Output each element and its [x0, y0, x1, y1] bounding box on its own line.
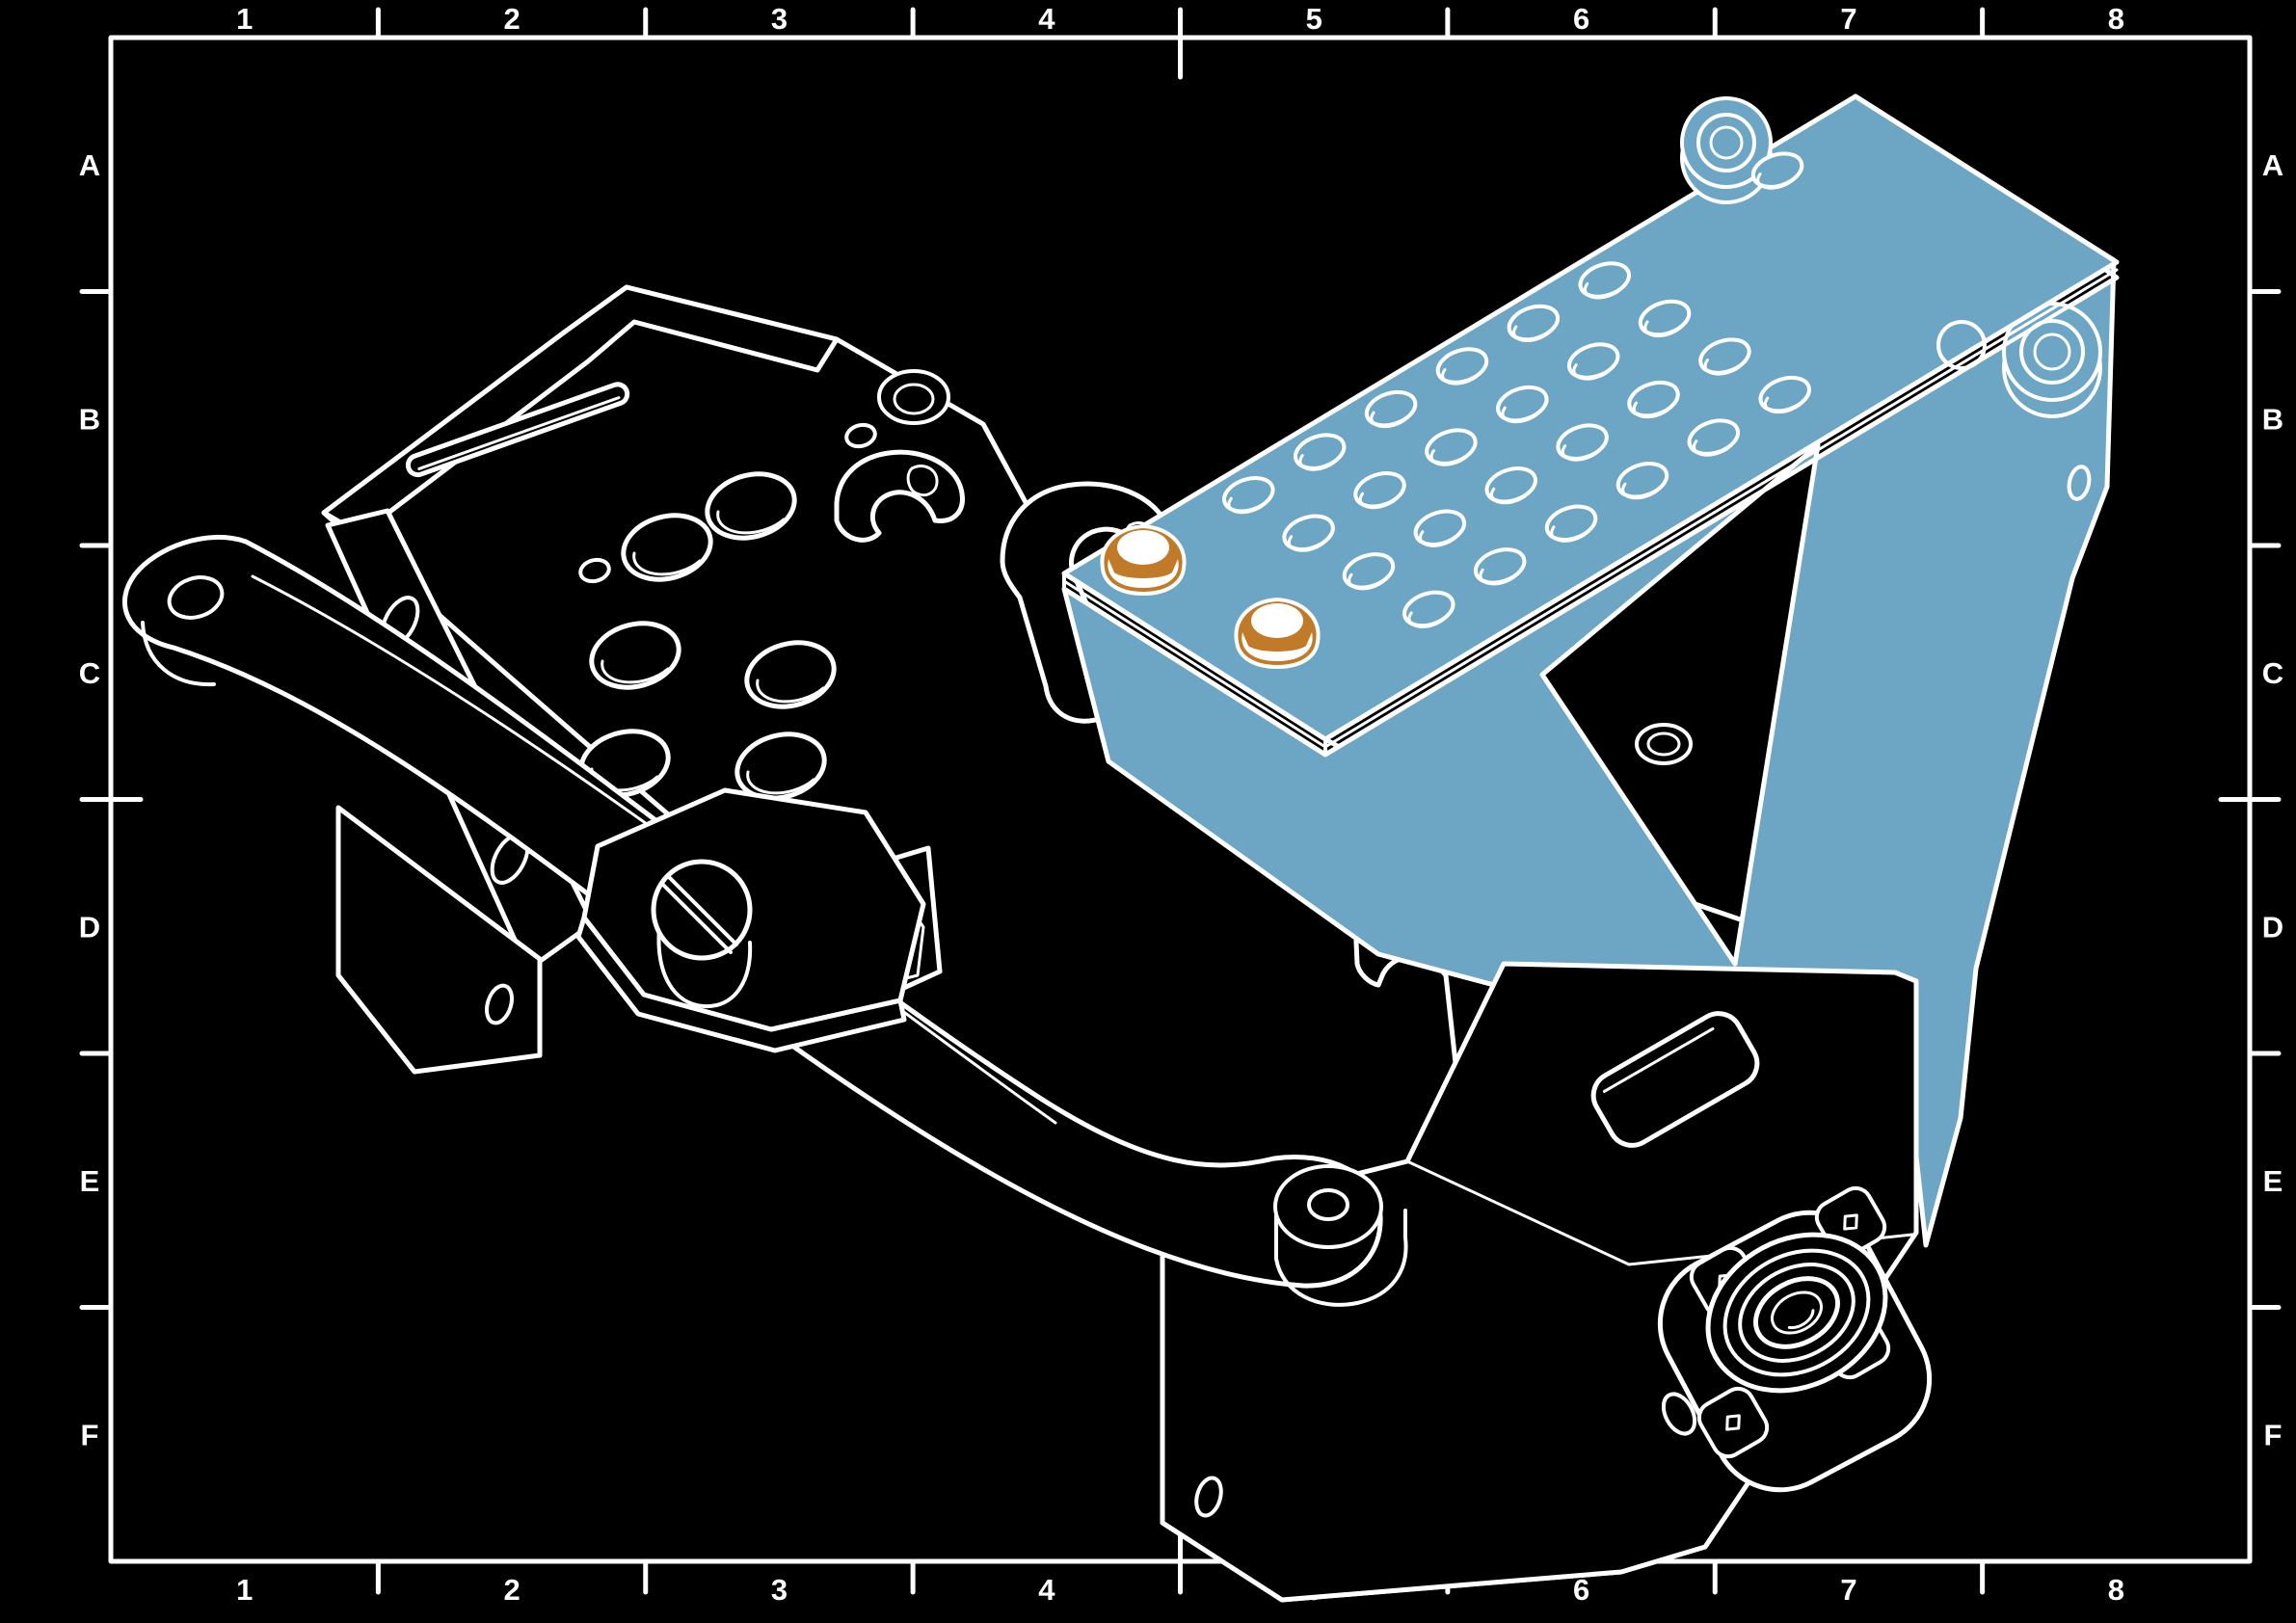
zone-label-col: 7	[1840, 1573, 1856, 1607]
zone-label-col: 6	[1573, 2, 1589, 36]
zone-label-col: 1	[236, 2, 253, 36]
isometric-view	[124, 96, 2117, 1600]
zone-label-col: 5	[1306, 2, 1322, 36]
zone-label-row: B	[79, 402, 100, 436]
screw-cap	[1117, 530, 1169, 565]
zone-label-row: A	[79, 148, 100, 182]
zone-label-col: 8	[2108, 2, 2124, 36]
technical-drawing: 1122334455667788AABBCCDDEEFF	[0, 0, 2296, 1623]
thumbscrew-icon	[1236, 599, 1318, 667]
zone-label-col: 2	[503, 2, 520, 36]
zone-label-row: C	[2262, 656, 2283, 690]
zone-label-row: B	[2262, 402, 2283, 436]
bracket-bushing-top	[1682, 98, 1771, 202]
deck-washer-inner	[894, 385, 933, 413]
zone-label-col: 4	[1038, 1573, 1055, 1607]
zone-label-row: E	[80, 1164, 100, 1198]
zone-label-row: F	[2264, 1418, 2283, 1451]
zone-label-row: C	[79, 656, 100, 690]
zone-label-row: D	[2262, 910, 2283, 944]
drawing-sheet: 1122334455667788AABBCCDDEEFF	[0, 0, 2296, 1623]
zone-label-row: D	[79, 910, 100, 944]
zone-label-col: 8	[2108, 1573, 2124, 1607]
screw-cap	[1251, 603, 1303, 638]
zone-label-row: A	[2262, 148, 2283, 182]
zone-label-row: E	[2263, 1164, 2283, 1198]
thumbscrew-icon	[1102, 526, 1184, 594]
zone-label-row: F	[81, 1418, 99, 1451]
zone-label-col: 3	[771, 1573, 788, 1607]
zone-label-col: 7	[1840, 2, 1856, 36]
zone-label-col: 2	[503, 1573, 520, 1607]
zone-label-col: 3	[771, 2, 788, 36]
zone-label-col: 4	[1038, 2, 1055, 36]
zone-label-col: 1	[236, 1573, 253, 1607]
